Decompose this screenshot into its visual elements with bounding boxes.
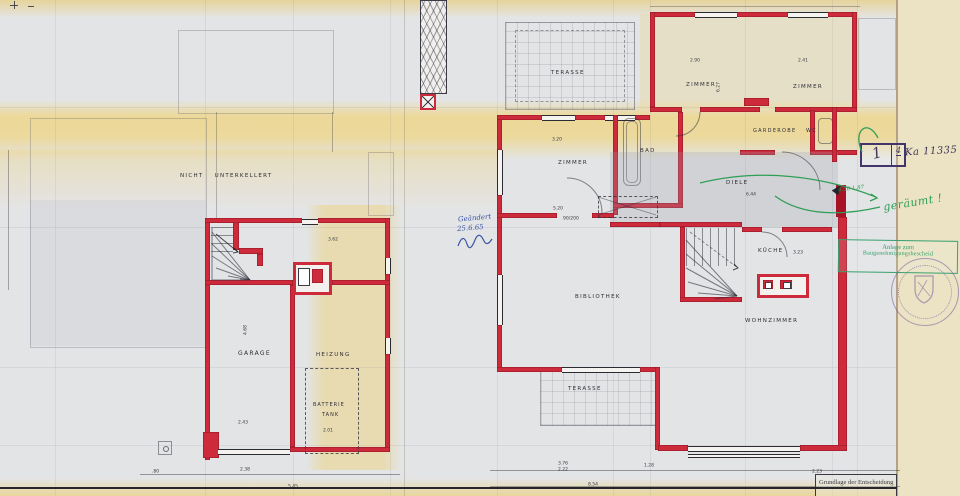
room-zimmer-w: ZIMMER: [558, 160, 588, 166]
site-outline-court: [30, 118, 207, 348]
room-kueche: KÜCHE: [758, 248, 783, 254]
window: [385, 258, 391, 274]
drain-symbol: [158, 441, 172, 455]
note-nicht-unterkellert: NICHT UNTERKELLERT: [180, 173, 272, 179]
room-terasse-top: TERASSE: [551, 70, 585, 76]
closet-dashed: [598, 196, 658, 218]
garage-door-opening: [218, 449, 290, 455]
room-tank: TANK: [322, 412, 339, 418]
ref-cell-main: 1: [870, 143, 884, 163]
window: [695, 12, 737, 18]
bathtub: [623, 118, 641, 186]
window-sill: [688, 454, 800, 458]
window-band: [688, 446, 800, 452]
room-terasse-bottom: TERASSE: [568, 386, 602, 392]
room-zimmer-nw: ZIMMER: [686, 82, 716, 88]
ref-cell-sub: 4: [896, 146, 901, 156]
room-zimmer-ne: ZIMMER: [793, 84, 823, 90]
window: [385, 338, 391, 354]
room-bad: BAD: [640, 148, 656, 154]
wc-fixture: [818, 118, 833, 144]
room-wohnzimmer: WOHNZIMMER: [745, 318, 798, 324]
room-diele: DIELE: [726, 180, 748, 186]
window: [542, 115, 575, 121]
window: [497, 275, 503, 325]
left-plan: NICHT UNTERKELLERT BATTERIE TANK 2: [0, 0, 420, 496]
scanned-floor-plan-sheet: NICHT UNTERKELLERT BATTERIE TANK 2: [0, 0, 960, 496]
window: [788, 12, 828, 18]
title-block-text: Grundlage der Entscheidung: [816, 475, 896, 486]
site-outline-small: [368, 152, 394, 216]
chimney-fixture: [293, 262, 332, 295]
title-block: Grundlage der Entscheidung: [815, 474, 897, 496]
window: [497, 150, 503, 195]
room-bibliothek: BIBLIOTHEK: [575, 294, 621, 300]
chimney-shaft: [420, 0, 447, 94]
room-batterie: BATTERIE: [313, 402, 345, 408]
site-outline-upper: [178, 30, 334, 114]
door-opening: [302, 219, 318, 225]
room-garage: GARAGE: [238, 350, 271, 357]
approval-stamp-line2: Baugenehmigungsbescheid: [839, 250, 957, 258]
battery-tank-outline: [305, 368, 359, 454]
stove-fixture: [757, 274, 809, 298]
stairs-main: [686, 228, 736, 266]
stairs-left-building: [211, 226, 233, 252]
ref-number-box: 1 4: [860, 143, 906, 167]
official-seal: [891, 258, 959, 326]
window: [562, 367, 640, 373]
room-wc: WC: [806, 128, 817, 134]
sheet-border-bottom: [0, 487, 897, 489]
small-shaft: [420, 94, 436, 110]
terrace-bottom: [540, 368, 660, 426]
room-heizung: HEIZUNG: [316, 352, 351, 358]
room-garderobe: GARDEROBE: [753, 128, 796, 134]
